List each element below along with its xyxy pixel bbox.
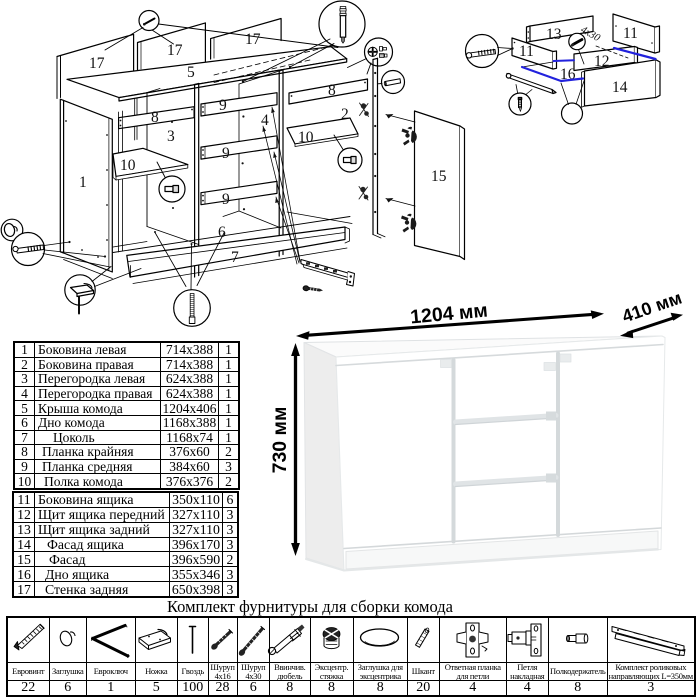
svg-text:9: 9 [222,191,230,208]
svg-text:17: 17 [89,55,105,72]
svg-text:9: 9 [219,97,227,114]
svg-text:17: 17 [245,31,261,48]
svg-text:8: 8 [328,82,336,99]
svg-text:5: 5 [187,64,195,81]
svg-text:11: 11 [623,25,638,42]
svg-text:13: 13 [546,26,562,43]
svg-text:17: 17 [167,42,183,59]
svg-text:15: 15 [431,168,447,185]
svg-text:11: 11 [519,43,534,60]
svg-text:14: 14 [612,79,628,96]
svg-text:410 мм: 410 мм [620,288,685,327]
svg-text:1: 1 [79,174,87,191]
svg-text:10: 10 [298,129,314,146]
svg-text:730 мм: 730 мм [269,407,291,474]
svg-text:8: 8 [151,109,159,126]
svg-text:4: 4 [261,112,269,129]
svg-text:6: 6 [218,224,226,241]
svg-text:7: 7 [231,249,239,266]
svg-text:10: 10 [120,157,136,174]
svg-text:9: 9 [222,145,230,162]
svg-text:3: 3 [167,128,175,145]
